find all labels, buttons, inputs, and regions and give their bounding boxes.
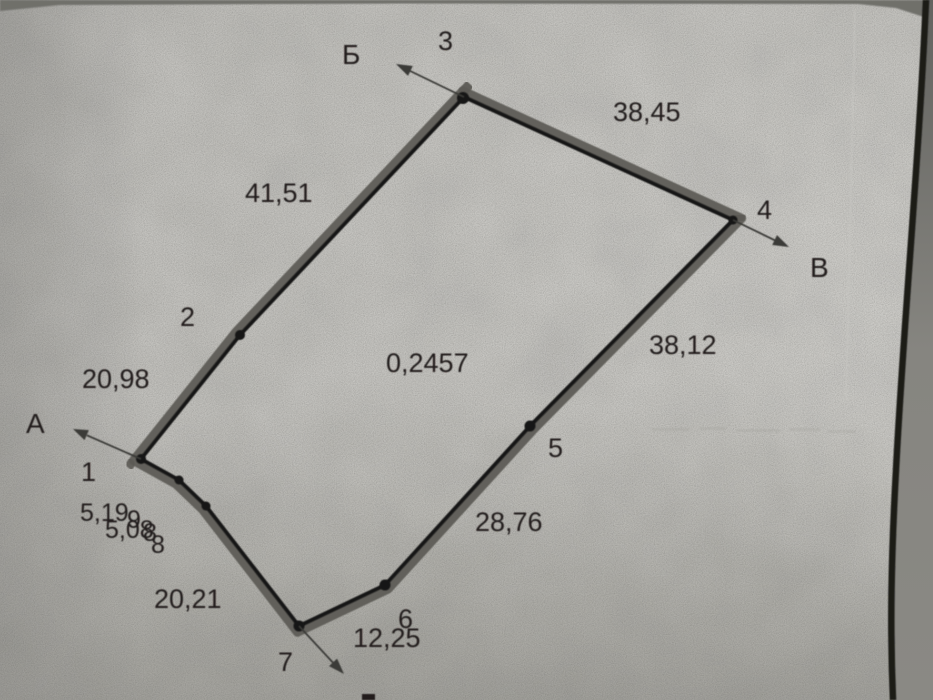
svg-text:41,51: 41,51 [245,178,313,208]
svg-text:Б: Б [342,39,360,70]
svg-text:20,98: 20,98 [82,364,150,394]
svg-text:38,45: 38,45 [613,97,681,127]
svg-text:4: 4 [757,195,772,225]
svg-text:1: 1 [81,457,96,487]
svg-text:12,25: 12,25 [353,623,421,653]
svg-text:38,12: 38,12 [649,330,717,360]
svg-text:8: 8 [151,531,165,559]
svg-text:В: В [810,252,829,283]
svg-text:0,2457: 0,2457 [386,348,469,378]
svg-text:3: 3 [438,26,453,56]
svg-text:28,76: 28,76 [475,507,543,537]
svg-text:5: 5 [548,433,563,463]
svg-text:7: 7 [278,647,293,677]
svg-text:20,21: 20,21 [154,584,222,614]
svg-text:2: 2 [180,302,195,332]
svg-text:А: А [26,408,45,439]
